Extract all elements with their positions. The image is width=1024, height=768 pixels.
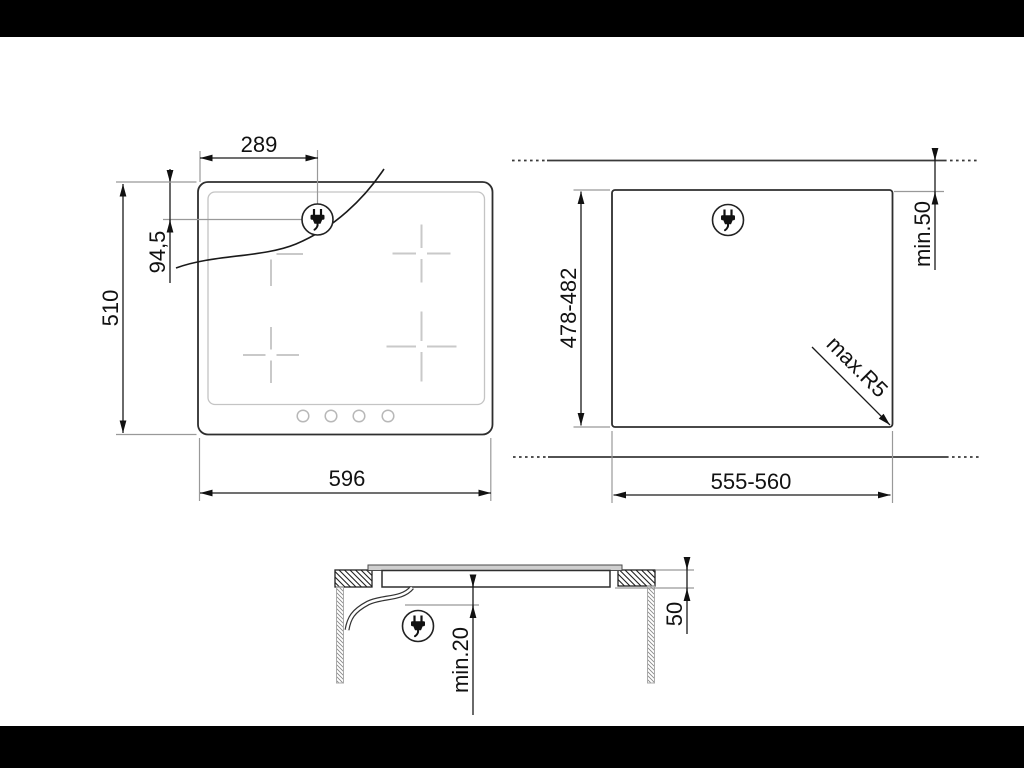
dim-label-plug-x: 289	[241, 132, 278, 157]
dim-label-recess-depth: 50	[662, 602, 687, 626]
dimension-plug-x: 289	[200, 132, 318, 182]
cabinet-wall-right	[648, 586, 655, 683]
worktop-section-left	[335, 570, 372, 587]
side-section-view: min.20 50	[335, 559, 694, 715]
dim-label-plug-y: 94,5	[145, 231, 170, 274]
dim-label-cutout-width: 555-560	[711, 469, 792, 494]
manual-page: 289 94,5 510 596	[0, 0, 1024, 768]
dim-label-cutout-depth: 478-482	[556, 268, 581, 349]
control-knob-mark	[325, 410, 337, 422]
letterbox-top	[0, 0, 1024, 37]
dimension-hob-width: 596	[200, 438, 492, 501]
power-plug-icon	[302, 204, 333, 235]
power-plug-icon	[713, 205, 744, 236]
dim-label-bottom-clearance: min.20	[448, 627, 473, 693]
cabinet-wall-left	[337, 587, 344, 683]
hob-top-view: 289 94,5 510 596	[98, 132, 493, 501]
control-knob-mark	[382, 410, 394, 422]
dim-label-rear-clearance: min.50	[910, 201, 935, 267]
dim-label-hob-width: 596	[329, 466, 366, 491]
letterbox-bottom	[0, 726, 1024, 768]
dimension-bottom-clearance: min.20	[405, 577, 479, 715]
installation-diagram: 289 94,5 510 596	[0, 0, 1024, 768]
dim-label-hob-depth: 510	[98, 290, 123, 327]
hob-body	[382, 571, 610, 588]
dimension-rear-clearance: min.50	[894, 148, 944, 270]
cutout-outline	[612, 190, 893, 427]
worktop-section-right	[618, 570, 655, 586]
cutout-view: 478-482 min.50 max.R5 555-560	[512, 148, 980, 503]
glass-plate	[368, 565, 622, 571]
control-knob-mark	[297, 410, 309, 422]
dimension-cutout-depth: 478-482	[556, 190, 610, 427]
control-knob-mark	[353, 410, 365, 422]
dimension-plug-y: 94,5	[145, 169, 170, 283]
power-plug-icon	[403, 611, 434, 642]
dimension-cutout-width: 555-560	[612, 431, 893, 503]
